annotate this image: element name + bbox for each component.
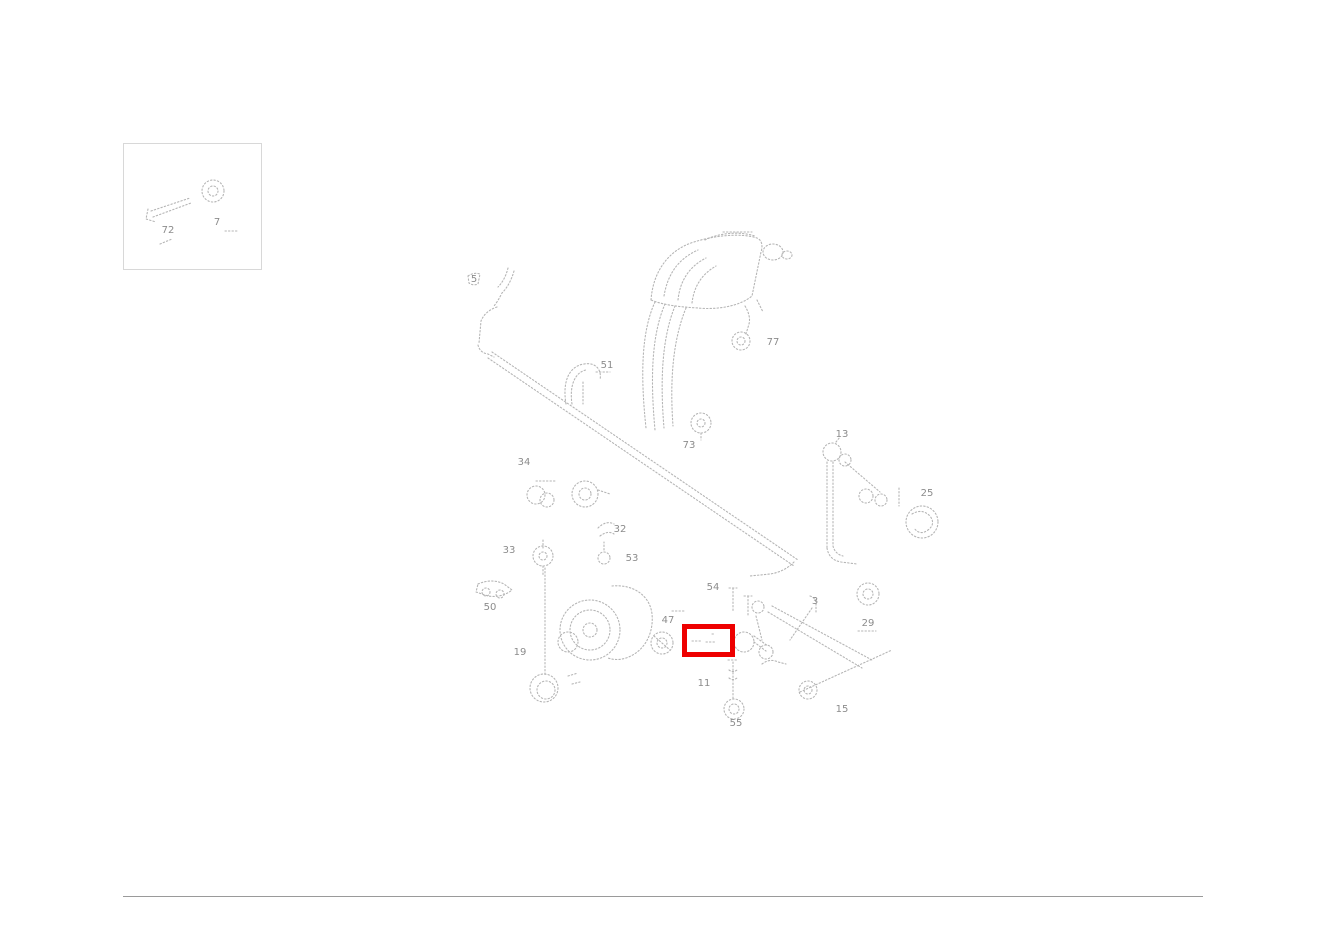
pulley-and-washers-artwork — [476, 481, 610, 598]
part-label-25: 25 — [921, 488, 934, 499]
part-label-77: 77 — [767, 337, 780, 348]
part-label-73: 73 — [683, 440, 696, 451]
inset-screw-and-washer-artwork — [146, 180, 237, 244]
pump-bracket-artwork — [643, 232, 792, 440]
part-label-19: 19 — [514, 647, 527, 658]
part-label-54: 54 — [707, 582, 720, 593]
footer-divider — [123, 896, 1203, 897]
part-label-51: 51 — [601, 360, 614, 371]
parts-diagram-page: 727551777313253432533350194754329115515 — [0, 0, 1326, 937]
diagram-artwork: 727551777313253432533350194754329115515 — [0, 0, 1326, 937]
part-label-7: 7 — [214, 217, 220, 228]
part-label-29: 29 — [862, 618, 875, 629]
part-label-53: 53 — [626, 553, 639, 564]
highlight-box[interactable] — [682, 624, 735, 657]
part-label-5: 5 — [471, 274, 477, 285]
part-label-15: 15 — [836, 704, 849, 715]
part-label-3: 3 — [812, 596, 818, 607]
part-label-55: 55 — [730, 718, 743, 729]
part-label-13: 13 — [836, 429, 849, 440]
part-label-32: 32 — [614, 524, 627, 535]
part-label-34: 34 — [518, 457, 531, 468]
part-number-labels: 727551777313253432533350194754329115515 — [162, 217, 934, 729]
part-label-50: 50 — [484, 602, 497, 613]
pump-body-artwork — [530, 523, 652, 702]
pressure-line-bracket-artwork — [724, 588, 892, 719]
part-label-11: 11 — [698, 678, 711, 689]
expansion-hose-artwork — [823, 437, 938, 631]
part-label-47: 47 — [662, 615, 675, 626]
part-label-72: 72 — [162, 225, 175, 236]
part-label-33: 33 — [503, 545, 516, 556]
